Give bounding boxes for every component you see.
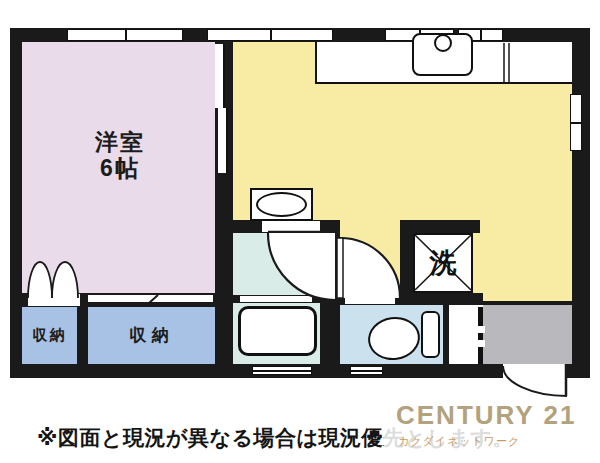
closet-folding-door-opening	[28, 294, 80, 306]
laundry-label: 洗	[413, 233, 473, 293]
entry-doorway-strip	[449, 305, 478, 364]
century21-logo-text: CENTURY 21	[396, 400, 600, 431]
washroom-door-opening	[262, 221, 320, 232]
window-toilet	[350, 366, 383, 375]
century21-logo: CENTURY 21 カクダイネットワーク	[384, 391, 600, 463]
toilet-tank-icon	[421, 311, 440, 358]
sliding-door-panel	[218, 108, 228, 173]
window	[207, 29, 333, 41]
stove-burner-icon	[256, 192, 307, 217]
wall-laundry-left	[400, 233, 413, 295]
room-washroom	[233, 233, 320, 295]
wall-right	[572, 28, 590, 378]
wall-laundry-top	[400, 220, 480, 233]
wall-genkan-top-line	[449, 301, 572, 305]
floor-plan: 洋室 6帖 収納 収納 洗	[0, 0, 600, 420]
entry-door-track	[478, 307, 483, 364]
bathroom-door-opening	[240, 296, 312, 302]
door-track-notch	[476, 326, 485, 333]
western-room-label: 洋室 6帖	[60, 129, 180, 181]
wall-toilet-genkan	[443, 305, 449, 364]
window-bathroom	[252, 366, 312, 375]
window-right-wall	[570, 94, 582, 151]
window	[67, 29, 183, 41]
entrance-door-opening	[503, 364, 567, 378]
western-room-name: 洋室	[60, 129, 180, 155]
bathtub-icon	[238, 306, 317, 356]
closet-sliding-door-opening	[88, 295, 213, 302]
western-room-size: 6帖	[60, 155, 180, 181]
faucet-icon	[434, 34, 452, 52]
logo-company-name: カクダイネットワーク	[398, 434, 600, 449]
wall-hallway-vertical	[320, 220, 340, 364]
floorplan-image: 洋室 6帖 収納 収納 洗 ※図面と現況が	[0, 0, 600, 463]
room-entrance-genkan	[483, 305, 572, 364]
closet-left-label: 収納	[22, 307, 77, 364]
toilet-door-opening	[345, 294, 395, 304]
sliding-door-panel	[215, 44, 225, 108]
wall-left	[10, 28, 22, 378]
closet-right-label: 収納	[88, 307, 215, 364]
door-track-notch	[476, 340, 485, 347]
